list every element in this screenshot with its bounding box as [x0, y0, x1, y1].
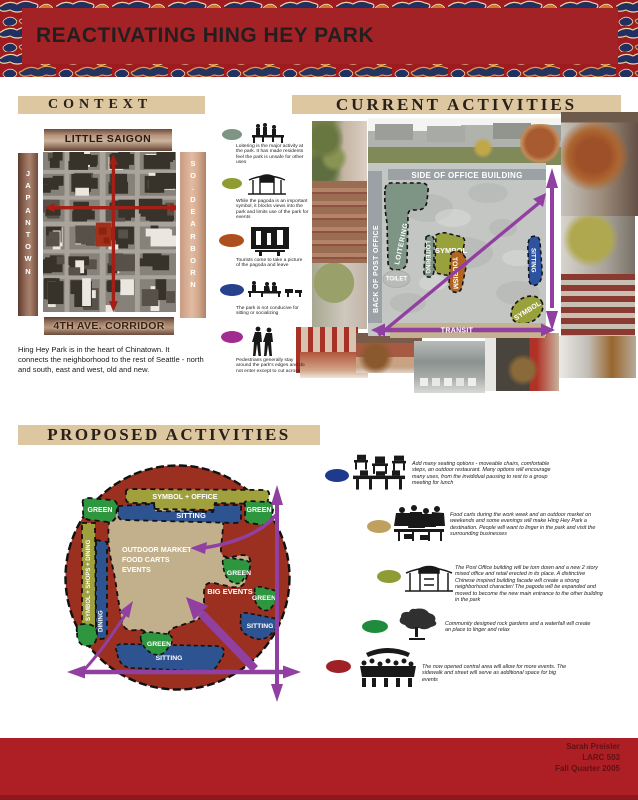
svg-text:SYMBOL + OFFICE: SYMBOL + OFFICE	[152, 492, 217, 501]
svg-text:SITTING: SITTING	[247, 623, 274, 630]
svg-text:TRANSIT: TRANSIT	[441, 328, 474, 335]
svg-text:GREEN: GREEN	[147, 641, 171, 648]
svg-text:GREEN: GREEN	[252, 595, 276, 602]
svg-text:EVENTS: EVENTS	[122, 565, 151, 574]
svg-text:BACK OF POST OFFICE: BACK OF POST OFFICE	[373, 225, 380, 313]
svg-text:LOITERING: LOITERING	[424, 241, 430, 274]
svg-text:GREEN: GREEN	[247, 507, 272, 514]
svg-text:FOOD CARTS: FOOD CARTS	[122, 555, 170, 564]
svg-text:OUTDOOR MARKET: OUTDOOR MARKET	[122, 545, 192, 554]
svg-text:DINING: DINING	[98, 610, 105, 632]
svg-text:TOILET: TOILET	[386, 277, 408, 283]
svg-text:SITTING: SITTING	[530, 248, 537, 273]
svg-text:SITTING: SITTING	[176, 511, 206, 520]
svg-text:SYMBOL + SHOPS + DINING: SYMBOL + SHOPS + DINING	[86, 539, 92, 621]
svg-text:BIG EVENTS: BIG EVENTS	[207, 587, 252, 596]
svg-text:GREEN: GREEN	[88, 507, 113, 514]
svg-text:GREEN: GREEN	[227, 570, 251, 577]
svg-text:SITTING: SITTING	[156, 655, 183, 662]
svg-text:SIDE OF OFFICE BUILDING: SIDE OF OFFICE BUILDING	[411, 171, 522, 180]
